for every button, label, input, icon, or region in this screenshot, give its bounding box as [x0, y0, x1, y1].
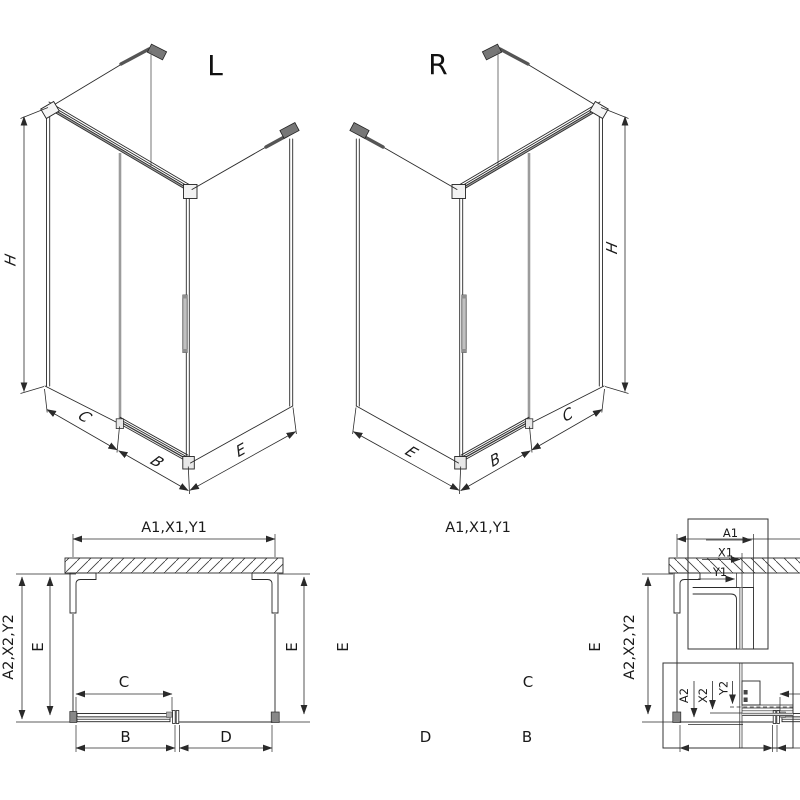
plan-left-dim-b: B	[120, 728, 130, 746]
detail-view-top: A1 X1 Y1	[688, 519, 768, 649]
iso-left-structure	[21, 44, 300, 494]
detail-bottom-dim-y2: Y2	[717, 681, 731, 696]
view-title-left: L	[207, 49, 223, 82]
plan-left-dim-e-right: E	[283, 642, 301, 651]
detail-top-dim-x1: X1	[718, 546, 733, 560]
plan-right-dim-top: A1,X1,Y1	[445, 520, 511, 536]
plan-left-dim-side: A2,X2,Y2	[1, 614, 17, 680]
plan-view-left: A1,X1,Y1 A2,X2,Y2 E E C B D	[1, 520, 310, 752]
plan-left-dim-c: C	[119, 673, 129, 691]
plan-right-dim-c: C	[523, 673, 533, 691]
detail-bottom-dim-x2: X2	[696, 688, 710, 703]
iso-view-right: R H C B E	[350, 44, 629, 494]
detail-bottom-dim-a2: A2	[677, 688, 691, 703]
plan-left-dim-top: A1,X1,Y1	[141, 520, 207, 536]
plan-left-dim-e-left: E	[29, 642, 47, 651]
plan-right-dim-side: A2,X2,Y2	[622, 614, 638, 680]
dim-label-e-left: E	[234, 439, 248, 461]
plan-left-structure	[16, 534, 310, 752]
detail-top-dim-a1: A1	[723, 526, 738, 540]
plan-right-dim-e-right: E	[586, 642, 604, 651]
plan-right-dim-b: B	[522, 728, 532, 746]
dim-label-c-right: C	[560, 403, 575, 426]
dim-label-h-right: H	[603, 240, 621, 255]
dim-label-h-left: H	[2, 252, 20, 267]
iso-view-left: L H C B E	[2, 44, 299, 494]
detail-top-dim-y1: Y1	[712, 565, 727, 579]
dim-label-c-left: C	[74, 407, 96, 426]
view-title-right: R	[428, 48, 447, 81]
iso-right-structure	[350, 44, 629, 494]
plan-right-dim-e-left: E	[334, 642, 352, 651]
dim-label-e-right: E	[401, 443, 422, 462]
detail-view-bottom: A2 X2 Y2	[663, 663, 793, 748]
plan-left-dim-d: D	[220, 728, 232, 746]
technical-drawing-canvas: L H C B E R H C B E A1,X1,Y1 A2,X2,Y2 E …	[0, 0, 800, 800]
plan-right-dim-d: D	[420, 728, 432, 746]
